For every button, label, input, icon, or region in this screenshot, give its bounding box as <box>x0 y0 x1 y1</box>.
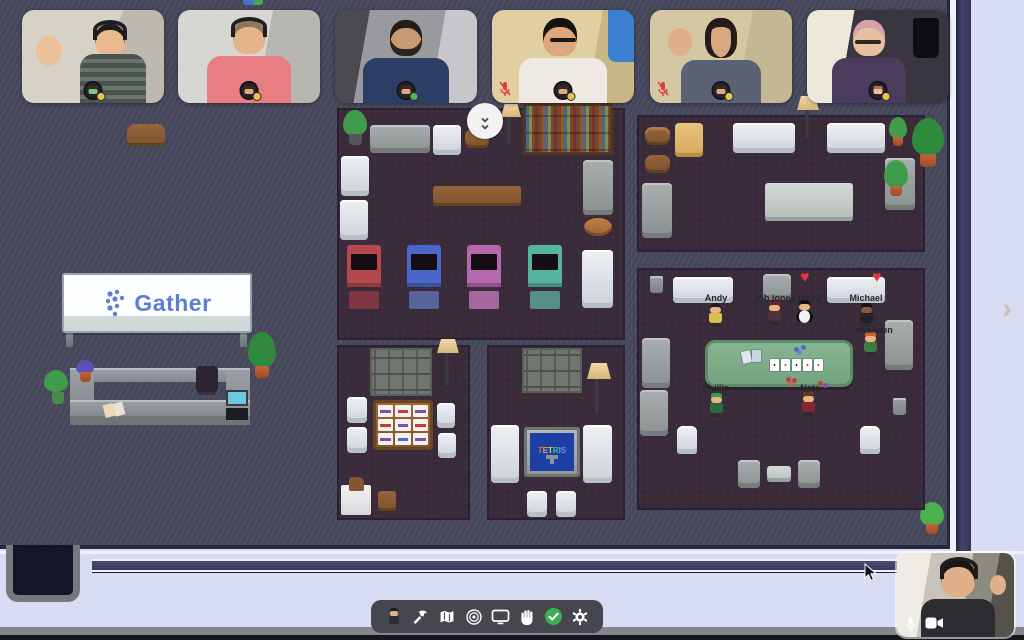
right-page-panel <box>971 0 1024 640</box>
raise-hand-icon[interactable] <box>517 607 537 627</box>
headphones <box>93 20 127 40</box>
camera-icon[interactable] <box>925 616 944 630</box>
lamp-shade <box>587 363 611 379</box>
sofa <box>733 123 795 153</box>
divider <box>0 551 1024 554</box>
mini-avatar-badge <box>869 81 888 100</box>
plant-icon <box>343 110 367 136</box>
player-avatar-jr[interactable] <box>766 301 783 325</box>
chair <box>437 403 455 428</box>
player-name: Michael <box>849 293 882 303</box>
participant-face <box>853 20 885 56</box>
player-name: jr b jones [m:n] <box>756 293 821 303</box>
tetris-room: TETRIS <box>487 345 625 520</box>
mini-avatar-badge <box>240 81 259 100</box>
headphones <box>940 557 978 579</box>
arcade-machine-teal[interactable] <box>528 245 562 309</box>
laptop <box>226 390 248 406</box>
tetris-tv[interactable]: TETRIS <box>524 427 580 477</box>
plant-pot <box>349 134 362 145</box>
trash-bin <box>650 276 663 293</box>
chair <box>677 426 697 454</box>
side-table <box>645 155 670 173</box>
plant-pot <box>890 186 902 196</box>
horizontal-scrollbar[interactable] <box>92 559 950 572</box>
arcade-machine-pink[interactable] <box>467 245 501 309</box>
mic-muted-icon <box>498 81 512 97</box>
video-tile-participant-6[interactable] <box>807 10 949 103</box>
emote-ripple-icon[interactable] <box>464 607 484 627</box>
player-avatar-phillip[interactable] <box>708 393 725 417</box>
reception-desk-front <box>70 416 250 425</box>
chevron-down-icon: ⌄ <box>479 121 492 128</box>
headphones <box>231 17 267 37</box>
card-deck <box>741 350 752 364</box>
status-dot <box>253 92 262 101</box>
window-light <box>608 10 634 62</box>
status-dot <box>882 92 891 101</box>
participant-face <box>543 18 577 56</box>
chair <box>860 426 880 454</box>
scroll-right-chevron-icon[interactable]: › <box>1002 292 1012 326</box>
map-edge-slot <box>6 545 80 602</box>
poker-chips-red <box>786 377 791 382</box>
monstera-plant <box>912 118 944 156</box>
floor-lamp <box>596 373 599 413</box>
glasses <box>855 40 881 44</box>
plant-pot <box>80 372 91 382</box>
community-card <box>803 359 812 371</box>
ottoman <box>584 218 612 236</box>
ottoman-seat <box>738 460 760 488</box>
palm-plant <box>44 370 68 392</box>
reception-desk <box>70 400 250 416</box>
plant-icon <box>889 117 907 139</box>
armchair <box>433 125 461 155</box>
board-game-room <box>337 345 470 520</box>
settings-gear-icon[interactable] <box>570 607 590 627</box>
player-avatar-shannon[interactable] <box>862 332 879 356</box>
video-tile-participant-3[interactable] <box>335 10 477 103</box>
lamp-shade <box>501 104 521 117</box>
heart-emote: ♥ <box>872 270 882 286</box>
game-shelf <box>370 348 432 396</box>
armchair <box>341 156 369 196</box>
sofa <box>827 123 885 153</box>
status-dot <box>97 92 106 101</box>
heart-emote: ♥ <box>800 270 810 286</box>
waving-hand <box>668 28 692 56</box>
monstera-plant <box>248 332 276 368</box>
microphone-icon[interactable] <box>904 616 917 632</box>
plant-pot <box>926 524 938 534</box>
palm-plant <box>884 160 908 188</box>
poker-chips-blue <box>794 347 799 352</box>
armchair <box>491 425 519 483</box>
video-tile-participant-5[interactable] <box>650 10 792 103</box>
player-avatar-nate[interactable] <box>800 392 817 416</box>
bookshelf <box>522 348 582 393</box>
tetris-block <box>546 455 558 459</box>
arcade-machine-blue[interactable] <box>407 245 441 309</box>
mini-avatar-badge <box>712 81 731 100</box>
coffee-pot <box>349 477 364 491</box>
player-name: Andy <box>705 293 728 303</box>
arcade-machine-red[interactable] <box>347 245 381 309</box>
gather-sign-label: Gather <box>134 290 211 317</box>
armchair <box>583 425 612 483</box>
plant-pot <box>893 137 903 146</box>
board-game-table[interactable] <box>373 400 433 450</box>
tetris-screen-label: TETRIS <box>538 446 566 455</box>
participant-face <box>705 18 737 58</box>
bookshelf <box>523 103 613 155</box>
app-window: ♥ ♥ Andy jr b jones [m:n] Michael shanno… <box>0 0 1024 640</box>
participant-face <box>390 20 422 56</box>
top-right-lounge-room <box>637 115 925 252</box>
self-video-tile[interactable] <box>897 553 1014 637</box>
waving-hand <box>36 36 62 66</box>
mouse-cursor <box>864 563 878 583</box>
keyboard <box>226 408 248 420</box>
plant-pot <box>52 392 64 404</box>
player-name: Phillip <box>703 383 730 393</box>
armchair <box>582 250 613 308</box>
armchair-tan <box>675 123 703 157</box>
build-hammer-icon[interactable] <box>410 607 430 627</box>
armchair <box>583 160 613 215</box>
armchair <box>642 338 670 388</box>
community-card <box>781 359 790 371</box>
gather-logo-icon <box>102 288 128 318</box>
community-card <box>792 359 801 371</box>
vertical-scrollbar[interactable] <box>956 0 971 640</box>
mini-avatar-badge <box>84 81 103 100</box>
poker-table[interactable] <box>705 340 853 387</box>
player-avatar-michael[interactable] <box>858 303 875 327</box>
community-card <box>814 359 823 371</box>
armchair <box>640 390 668 436</box>
ottoman-seat <box>527 491 547 517</box>
glasses <box>550 38 576 42</box>
plant-pot <box>255 366 269 378</box>
status-available-icon[interactable] <box>544 607 564 627</box>
my-avatar-button[interactable] <box>384 607 404 627</box>
status-dot <box>410 92 419 101</box>
status-dot <box>567 92 576 101</box>
waving-hand <box>990 575 1006 595</box>
video-tile-participant-4[interactable] <box>492 10 634 103</box>
lamp-shade <box>437 339 459 353</box>
ottoman-seat <box>556 491 576 517</box>
map-icon[interactable] <box>437 607 457 627</box>
reception-desk <box>70 368 250 382</box>
mic-muted-icon <box>656 81 670 97</box>
arcade-lounge-room <box>337 108 625 340</box>
trash-bin <box>893 398 906 415</box>
sofa <box>370 125 430 153</box>
bottom-dark-strip <box>0 635 1024 640</box>
community-card <box>770 359 779 371</box>
chair <box>347 427 367 453</box>
plant-pot <box>920 154 936 167</box>
status-dot <box>725 92 734 101</box>
mini-avatar-badge <box>397 81 416 100</box>
armchair <box>642 183 672 238</box>
sign-post <box>240 331 247 347</box>
ottoman-seat <box>798 460 820 488</box>
video-tile-participant-2[interactable] <box>178 10 320 103</box>
side-table <box>645 127 670 145</box>
gather-sign: Gather <box>62 273 252 333</box>
hanging-clothes <box>913 18 939 58</box>
jump-down-badge[interactable]: ⌄ ⌄ <box>467 103 503 139</box>
chair <box>438 433 456 458</box>
chair <box>347 397 367 423</box>
map-decor-sprite <box>243 0 263 5</box>
player-name: shannon <box>855 325 893 335</box>
player-name: Nate <box>800 383 820 393</box>
sign-post <box>66 331 73 347</box>
screen-share-icon[interactable] <box>490 607 510 627</box>
floor-lamp <box>508 114 511 144</box>
armchair <box>340 200 368 240</box>
coffee-table <box>433 186 521 206</box>
mini-avatar-badge <box>554 81 573 100</box>
player-avatar-andy[interactable] <box>707 303 724 327</box>
conference-table <box>765 183 853 221</box>
small-table <box>767 466 791 482</box>
office-chair <box>196 366 218 392</box>
card-deck <box>752 350 761 362</box>
bottom-toolbar <box>371 600 603 633</box>
bench <box>127 124 165 146</box>
stool <box>378 491 396 511</box>
player-avatar-dealer[interactable] <box>796 300 813 324</box>
video-tile-participant-1[interactable] <box>22 10 164 103</box>
